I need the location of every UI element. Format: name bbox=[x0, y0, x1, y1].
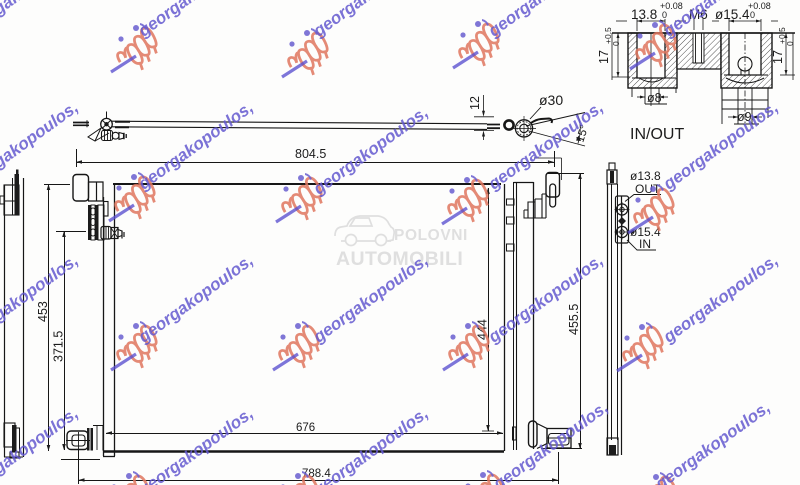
svg-text:17: 17 bbox=[597, 50, 611, 64]
svg-text:0: 0 bbox=[750, 10, 755, 20]
svg-text:ø8: ø8 bbox=[647, 91, 662, 105]
svg-text:0: 0 bbox=[611, 41, 621, 46]
svg-text:ø30: ø30 bbox=[539, 92, 563, 108]
svg-text:455.5: 455.5 bbox=[567, 304, 581, 335]
svg-text:0: 0 bbox=[662, 10, 667, 20]
svg-text:804.5: 804.5 bbox=[295, 147, 326, 161]
svg-text:IN/OUT: IN/OUT bbox=[630, 126, 684, 143]
svg-text:453: 453 bbox=[36, 301, 50, 322]
svg-text:676: 676 bbox=[296, 422, 315, 434]
svg-text:POLOVNI: POLOVNI bbox=[394, 227, 468, 244]
svg-text:ø15.4: ø15.4 bbox=[715, 7, 750, 22]
svg-text:ø13.8: ø13.8 bbox=[630, 169, 661, 183]
svg-text:IN: IN bbox=[639, 237, 651, 251]
svg-text:13.8: 13.8 bbox=[631, 7, 657, 22]
svg-text:0: 0 bbox=[785, 41, 795, 46]
svg-text:17: 17 bbox=[771, 50, 785, 64]
svg-text:371.5: 371.5 bbox=[52, 331, 66, 362]
svg-text:12: 12 bbox=[468, 96, 482, 110]
